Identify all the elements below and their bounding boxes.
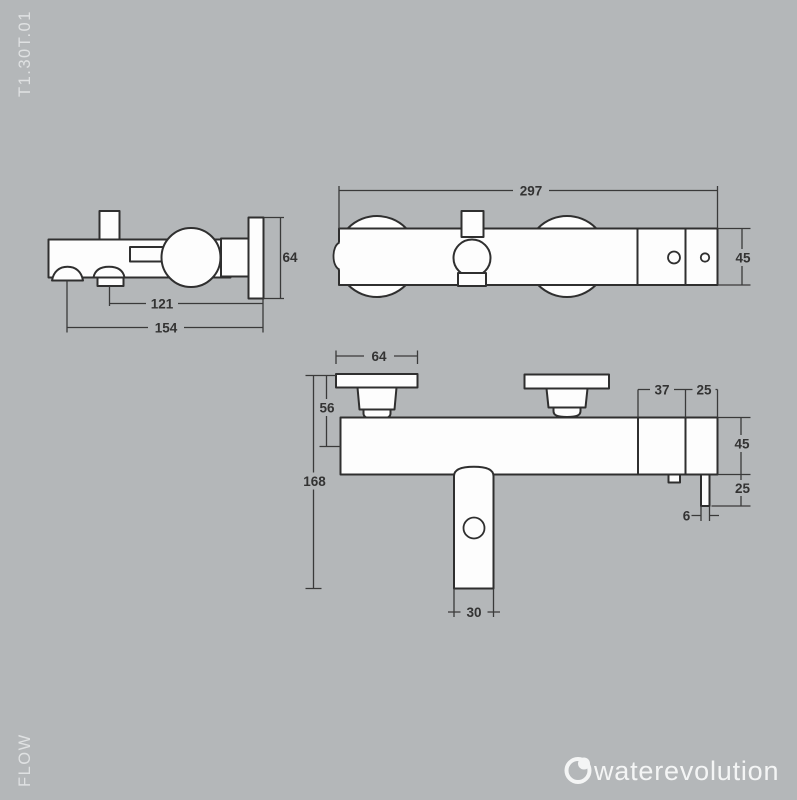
top-dim-45: 45 bbox=[718, 229, 754, 286]
dim-label: 45 bbox=[735, 251, 751, 266]
brand-name: waterevolution bbox=[593, 756, 779, 786]
side-wall-plate bbox=[249, 218, 264, 299]
top-screw-hole-right bbox=[701, 253, 709, 261]
logo-droplet-icon bbox=[578, 758, 590, 770]
front-wall-plate-right bbox=[525, 375, 610, 389]
dim-label: 64 bbox=[371, 349, 387, 364]
front-dim-30: 30 bbox=[448, 589, 500, 621]
side-dim-64: 64 bbox=[264, 218, 298, 299]
side-dim-121: 121 bbox=[110, 287, 264, 333]
dim-label: 121 bbox=[151, 297, 174, 312]
dim-label: 297 bbox=[520, 184, 543, 199]
side-stem bbox=[221, 239, 249, 277]
dim-label: 45 bbox=[734, 437, 750, 452]
dim-label: 37 bbox=[654, 383, 669, 398]
front-dim-6: 6 bbox=[683, 506, 719, 524]
front-dim-45: 45 bbox=[718, 418, 752, 475]
front-dim-25: 25 bbox=[712, 475, 753, 507]
dim-label: 64 bbox=[282, 250, 298, 265]
top-diverter-knob bbox=[462, 211, 484, 237]
top-body bbox=[339, 229, 718, 286]
front-dim-37: 37 25 bbox=[638, 382, 718, 418]
spec-sheet-page: 64 121 154 297 bbox=[0, 0, 797, 800]
front-dim-64: 64 bbox=[336, 348, 418, 364]
front-connector-right bbox=[547, 389, 588, 408]
side-diverter-knob bbox=[100, 211, 120, 240]
dim-label: 25 bbox=[735, 481, 751, 496]
front-view: 64 56 168 37 25 45 25 bbox=[299, 348, 752, 620]
dim-label: 56 bbox=[319, 401, 335, 416]
side-handle-knob bbox=[162, 228, 221, 287]
front-collar-right bbox=[554, 408, 581, 418]
front-spout-hole bbox=[464, 518, 485, 539]
front-body bbox=[341, 418, 718, 475]
side-outlet-dome bbox=[94, 267, 125, 278]
technical-drawing-canvas: 64 121 154 297 bbox=[0, 0, 797, 800]
top-handle bbox=[454, 240, 491, 277]
side-outlet-stub bbox=[98, 278, 124, 287]
front-outlet-tube bbox=[701, 475, 710, 507]
dim-label: 154 bbox=[155, 321, 178, 336]
flow-label: FLOW bbox=[16, 733, 34, 787]
dim-label: 25 bbox=[696, 383, 712, 398]
front-wall-plate-left bbox=[336, 374, 418, 388]
dim-label: 6 bbox=[683, 509, 691, 524]
top-view: 297 45 bbox=[334, 183, 754, 298]
brand-logo: waterevolution bbox=[567, 756, 780, 786]
front-connector-left bbox=[358, 388, 397, 410]
top-spout-tip-arc bbox=[334, 243, 340, 270]
product-code: T1.30T.01 bbox=[16, 10, 34, 97]
side-view: 64 121 154 bbox=[49, 211, 298, 336]
top-screw-hole-left bbox=[668, 252, 680, 264]
dim-label: 168 bbox=[303, 474, 326, 489]
front-drain-notch bbox=[669, 475, 681, 483]
dim-label: 30 bbox=[466, 605, 481, 620]
top-handle-base bbox=[458, 273, 486, 286]
